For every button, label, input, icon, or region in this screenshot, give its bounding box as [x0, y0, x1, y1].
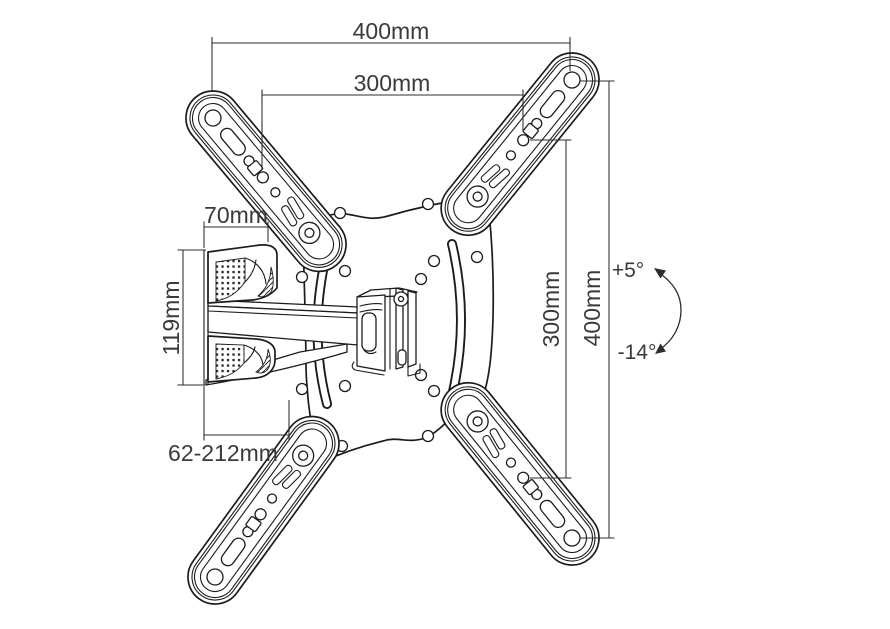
tilt-arrow-down [655, 344, 666, 355]
tilt-angle-indicator: +5° -14° [612, 259, 681, 364]
dim-label-width-400: 400mm [353, 18, 430, 44]
wall-plate-lower-block [208, 336, 275, 382]
dim-wall-height-119: 119mm [158, 250, 206, 385]
dim-extension-range: 62-212mm [168, 386, 289, 466]
tilt-up-label: +5° [612, 259, 644, 282]
wall-plate-upper-block [208, 245, 277, 303]
dim-wall-width-70: 70mm [204, 202, 268, 248]
tilt-arc [658, 272, 681, 350]
dim-label-wall-height: 119mm [158, 281, 184, 356]
wall-mount-diagram: 400mm 300mm 70mm 119mm 62-212mm 300mm [0, 0, 890, 629]
wall-mount-diagram-page: 400mm 300mm 70mm 119mm 62-212mm 300mm [0, 0, 890, 629]
dim-height-400: 400mm [579, 81, 615, 538]
arm-bottom-left [177, 406, 349, 615]
tilt-down-label: -14° [618, 341, 657, 364]
dim-label-wall-width: 70mm [204, 202, 268, 228]
arm-top-right [430, 42, 610, 246]
dim-label-height-400: 400mm [579, 270, 605, 347]
hinge-slot [362, 313, 376, 351]
dim-label-width-300: 300mm [354, 70, 431, 96]
arm-bottom-right [430, 372, 610, 576]
dim-label-height-300: 300mm [538, 271, 564, 348]
dim-height-300: 300mm [530, 140, 572, 478]
dim-label-extension-range: 62-212mm [168, 440, 278, 466]
